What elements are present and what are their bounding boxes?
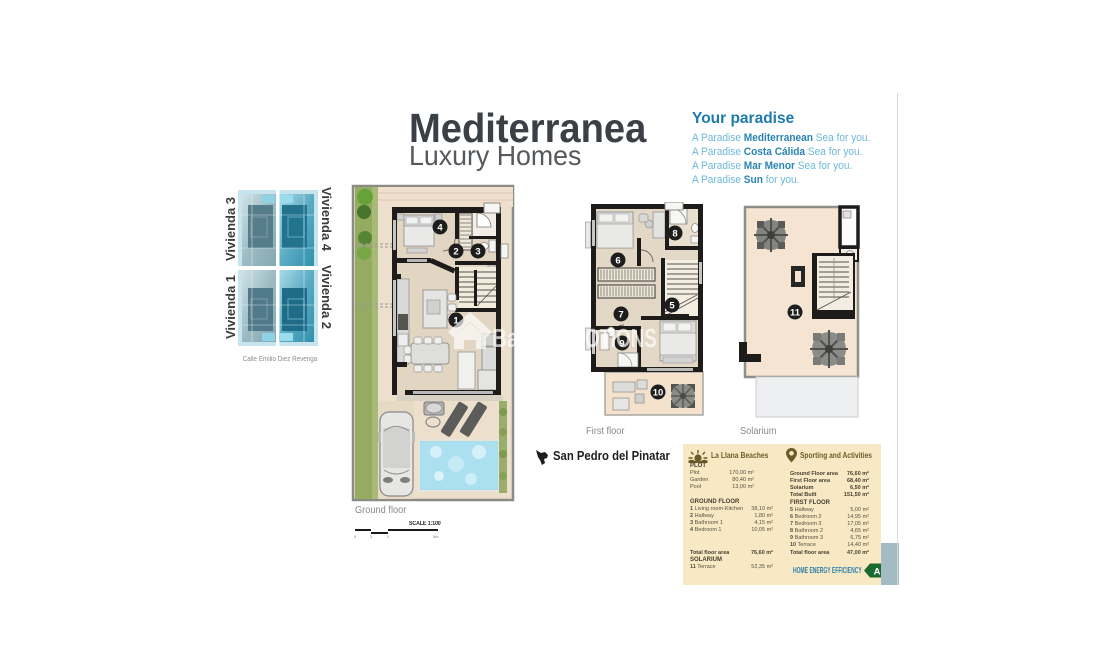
svg-text:11: 11 [790, 308, 801, 319]
svg-text:A: A [874, 567, 881, 578]
svg-text:8: 8 [672, 229, 677, 240]
svg-text:6: 6 [615, 256, 620, 267]
svg-text:10: 10 [653, 388, 664, 399]
svg-text:9: 9 [619, 339, 624, 350]
svg-text:1: 1 [453, 316, 459, 327]
svg-text:5: 5 [669, 301, 675, 312]
svg-text:2: 2 [453, 247, 458, 258]
svg-text:7: 7 [618, 310, 623, 321]
svg-text:3: 3 [475, 247, 480, 258]
svg-text:4: 4 [437, 223, 443, 234]
